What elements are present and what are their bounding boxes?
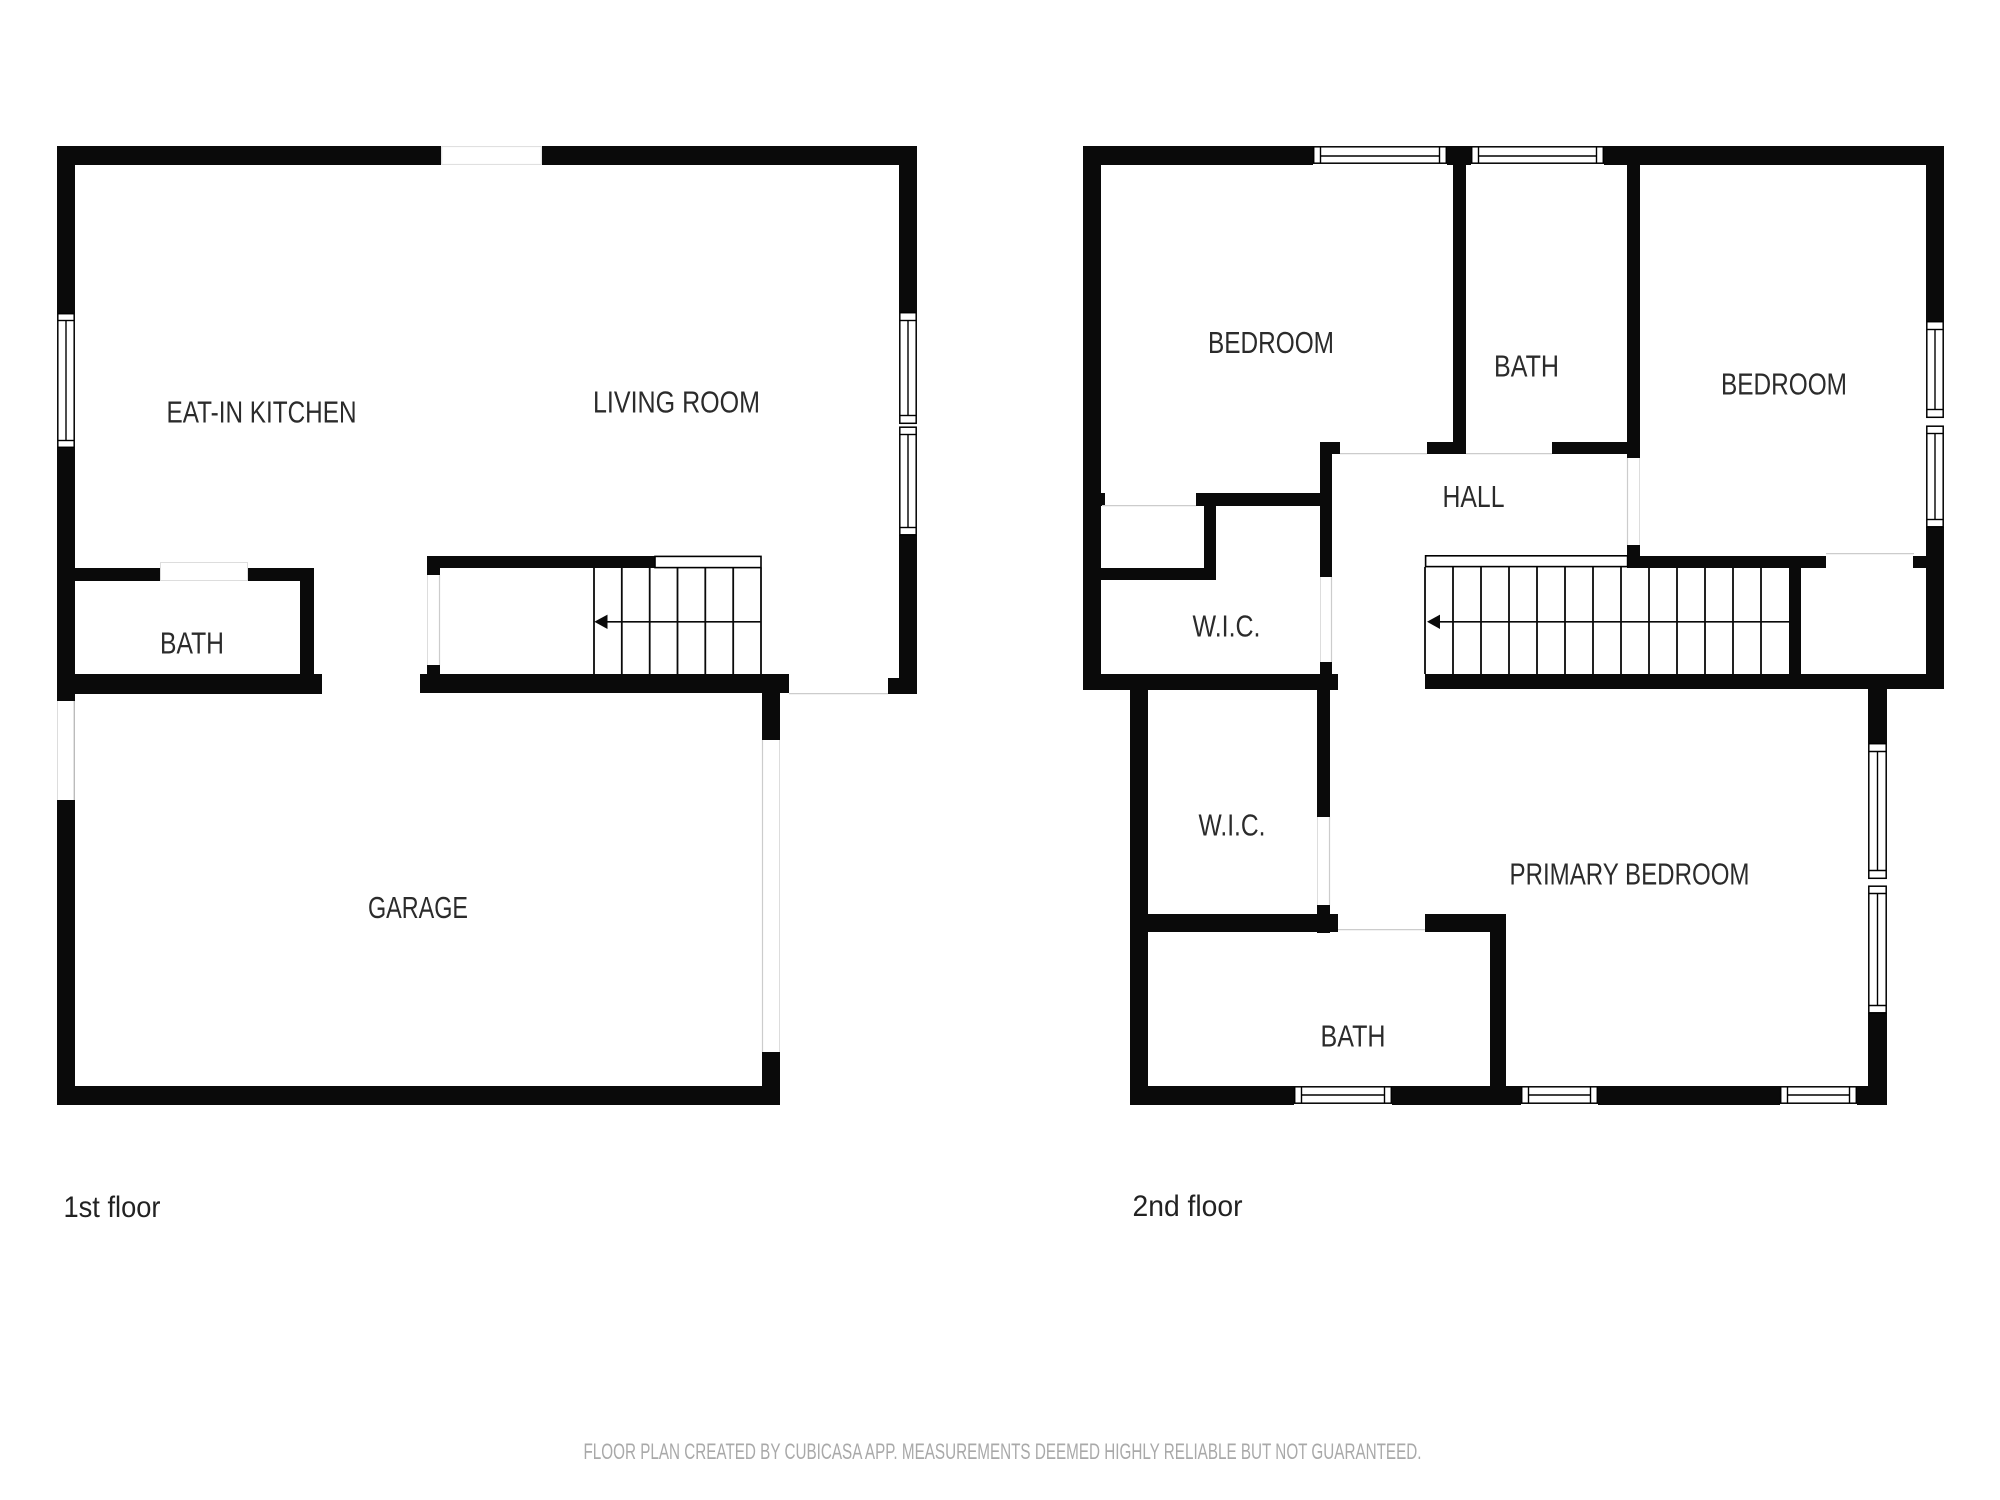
svg-text:BEDROOM: BEDROOM	[1721, 367, 1847, 402]
svg-text:FLOOR PLAN CREATED BY CUBICASA: FLOOR PLAN CREATED BY CUBICASA APP. MEAS…	[584, 1439, 1422, 1464]
svg-text:HALL: HALL	[1443, 479, 1505, 514]
svg-text:PRIMARY BEDROOM: PRIMARY BEDROOM	[1510, 857, 1750, 892]
svg-text:W.I.C.: W.I.C.	[1193, 609, 1261, 644]
svg-text:LIVING ROOM: LIVING ROOM	[593, 385, 760, 420]
svg-text:BEDROOM: BEDROOM	[1208, 325, 1334, 360]
svg-text:BATH: BATH	[1321, 1019, 1386, 1054]
svg-text:W.I.C.: W.I.C.	[1199, 808, 1266, 843]
svg-text:2nd floor: 2nd floor	[1133, 1190, 1243, 1223]
svg-text:BATH: BATH	[160, 626, 224, 661]
svg-text:1st floor: 1st floor	[64, 1191, 161, 1224]
svg-text:BATH: BATH	[1494, 349, 1559, 384]
svg-text:GARAGE: GARAGE	[368, 890, 468, 925]
svg-text:EAT-IN KITCHEN: EAT-IN KITCHEN	[167, 395, 357, 430]
